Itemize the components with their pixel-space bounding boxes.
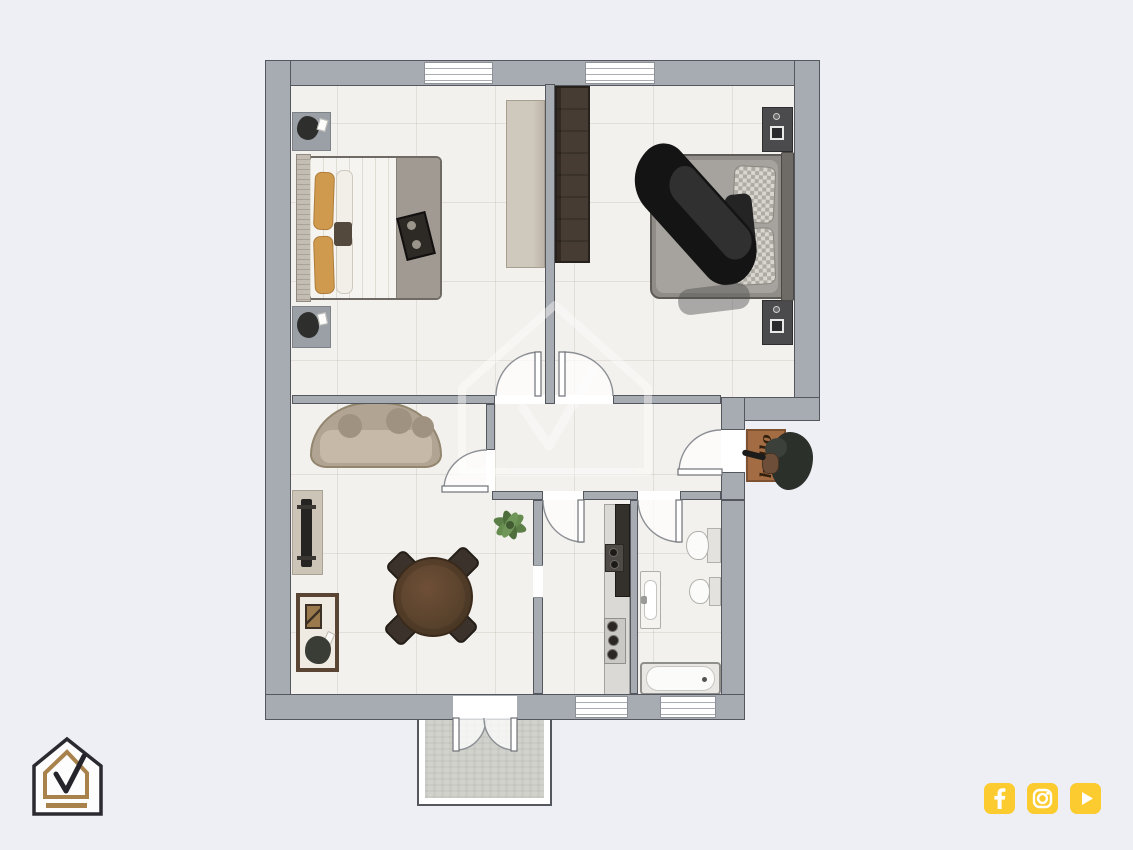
door-opening <box>486 450 495 491</box>
wall <box>292 395 495 404</box>
floor-plan-page: hello <box>0 0 1133 850</box>
balcony-door-opening <box>453 696 517 718</box>
wall <box>583 491 638 500</box>
folded-throw <box>334 222 352 246</box>
social-links <box>984 783 1101 814</box>
tray-cup <box>407 221 416 230</box>
window <box>575 696 628 718</box>
tv-foot <box>297 505 316 509</box>
sofa-cushion <box>386 408 412 434</box>
round-dining-table <box>393 557 473 637</box>
facebook-icon[interactable] <box>984 783 1015 814</box>
bed-headboard <box>781 152 794 301</box>
door-opening <box>638 491 680 500</box>
tray-cup <box>412 240 421 249</box>
wall <box>265 60 291 720</box>
wall <box>486 404 495 450</box>
wall <box>721 472 745 500</box>
wall <box>545 84 555 404</box>
pillow-orange <box>313 172 335 231</box>
bidet-tank <box>709 577 721 606</box>
speaker-on-nightstand <box>770 126 784 140</box>
pillow-orange <box>313 236 335 295</box>
house-check-logo <box>26 728 112 824</box>
candle-on-nightstand <box>773 113 780 120</box>
wall <box>613 395 721 404</box>
window <box>424 62 493 84</box>
basin-faucet <box>641 596 647 604</box>
plant-on-nightstand <box>297 312 319 338</box>
door-opening <box>495 395 545 404</box>
plant-in-cabinet <box>305 636 331 664</box>
wall <box>492 491 543 500</box>
picture-frame-in-cabinet <box>305 604 322 629</box>
wall <box>680 491 721 500</box>
wardrobe-light <box>506 100 545 268</box>
pillow-white <box>336 170 353 230</box>
pass-through-window <box>533 565 543 598</box>
bidet-bowl <box>689 579 710 604</box>
wall <box>744 397 820 421</box>
bed-headboard <box>296 154 311 302</box>
window <box>660 696 716 718</box>
sofa-cushion <box>412 416 434 438</box>
wall <box>721 397 745 430</box>
youtube-icon[interactable] <box>1070 783 1101 814</box>
wall <box>794 60 820 421</box>
burner <box>609 548 618 557</box>
bathtub-drain <box>702 677 707 682</box>
wall <box>265 60 820 86</box>
wall <box>630 500 638 694</box>
instagram-icon[interactable] <box>1027 783 1058 814</box>
oven-knob <box>608 635 619 646</box>
toilet-bowl <box>686 531 709 560</box>
oven-knob <box>607 649 618 660</box>
window <box>585 62 655 84</box>
speaker-on-nightstand <box>770 319 784 333</box>
oven-knob <box>607 621 618 632</box>
toilet-tank <box>707 528 721 563</box>
wardrobe-dark <box>555 86 590 263</box>
balcony-deck <box>425 716 544 798</box>
tv-foot <box>297 556 316 560</box>
sofa-cushion <box>338 414 362 438</box>
burner <box>610 560 619 569</box>
wall <box>721 500 745 720</box>
candle-on-nightstand <box>773 306 780 313</box>
door-opening <box>543 491 583 500</box>
door-opening <box>555 395 613 404</box>
